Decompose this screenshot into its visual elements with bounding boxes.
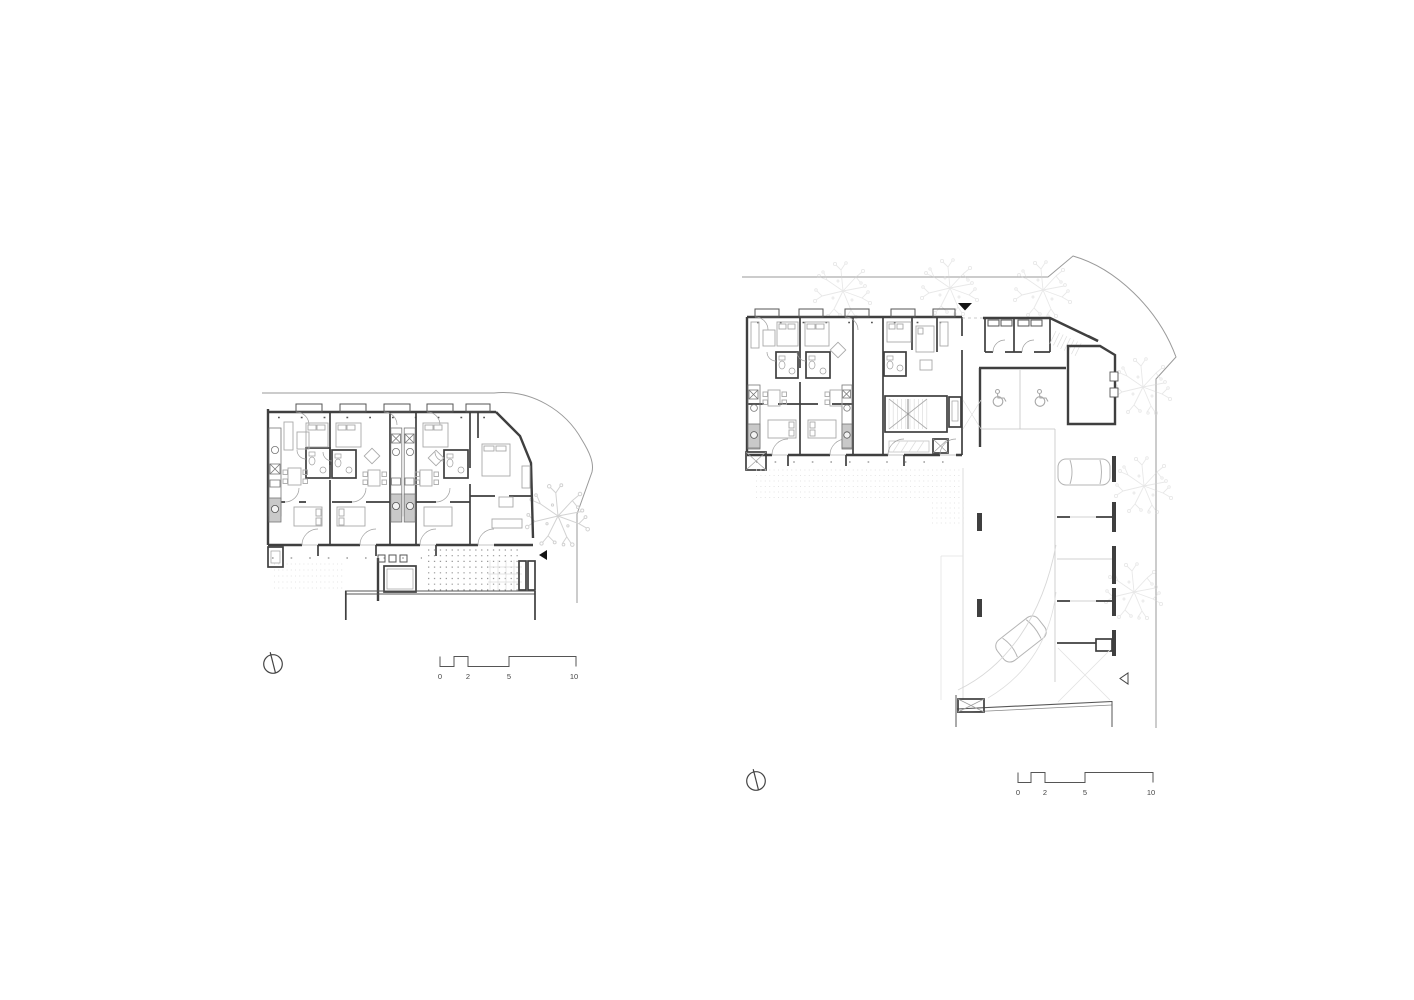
wheelchair-icon bbox=[993, 390, 1006, 407]
wheelchair-icon bbox=[1035, 390, 1048, 407]
scale-label: 2 bbox=[466, 672, 470, 681]
floor-plans-canvas: 0 2 5 10 bbox=[0, 0, 1414, 1000]
scale-label: 10 bbox=[570, 672, 578, 681]
scale-label: 10 bbox=[1147, 788, 1155, 797]
entrance-arrow-icon bbox=[539, 550, 547, 560]
tree-icons bbox=[813, 259, 1172, 620]
north-arrow-icon bbox=[264, 652, 283, 673]
scale-label: 5 bbox=[507, 672, 511, 681]
scale-bar: 0 2 5 10 bbox=[438, 657, 578, 682]
right-floor-plan: 0 2 5 10 bbox=[742, 256, 1176, 797]
drawing-sheet: 0 2 5 10 bbox=[0, 0, 1414, 1000]
scale-label: 0 bbox=[1016, 788, 1020, 797]
kitchen-counters bbox=[269, 428, 415, 522]
exterior-stairs bbox=[1050, 331, 1081, 356]
site-works bbox=[268, 547, 535, 620]
tree-icon bbox=[525, 484, 589, 547]
exit-arrow-icon bbox=[1120, 673, 1128, 684]
building-walls bbox=[746, 309, 962, 470]
left-floor-plan: 0 2 5 10 bbox=[262, 393, 593, 681]
scale-bar: 0 2 5 10 bbox=[1016, 773, 1155, 798]
scale-label: 5 bbox=[1083, 788, 1087, 797]
parking-garage bbox=[941, 318, 1118, 727]
car-icon bbox=[993, 613, 1050, 666]
staircase bbox=[889, 399, 948, 453]
street-boundary bbox=[262, 393, 593, 603]
north-arrow-icon bbox=[747, 769, 766, 790]
scale-label: 2 bbox=[1043, 788, 1047, 797]
scale-label: 0 bbox=[438, 672, 442, 681]
door-swings bbox=[755, 317, 956, 455]
car-icon bbox=[1058, 459, 1110, 485]
garden-texture bbox=[756, 462, 966, 523]
